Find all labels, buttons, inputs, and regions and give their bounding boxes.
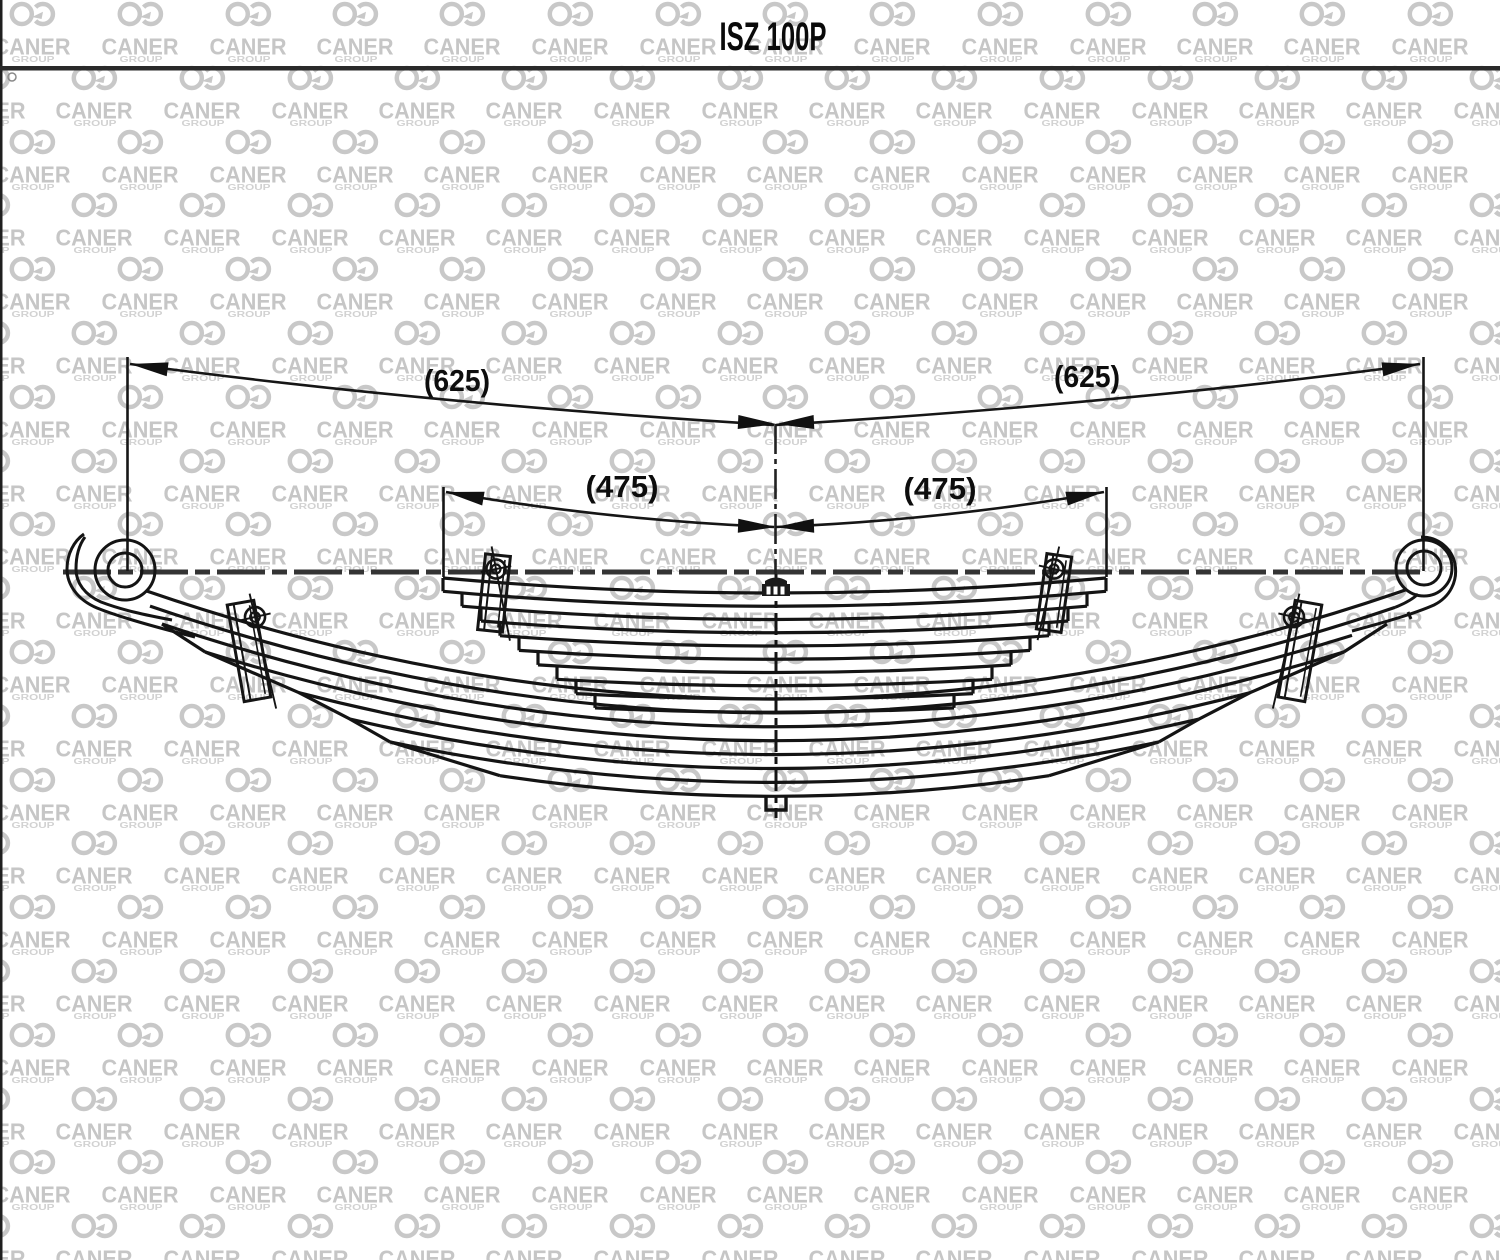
- svg-text:(475): (475): [586, 469, 659, 504]
- svg-text:ISZ 100P: ISZ 100P: [720, 15, 827, 59]
- svg-text:(625): (625): [1054, 359, 1120, 394]
- svg-text:(475): (475): [904, 471, 977, 506]
- svg-text:(625): (625): [424, 363, 490, 398]
